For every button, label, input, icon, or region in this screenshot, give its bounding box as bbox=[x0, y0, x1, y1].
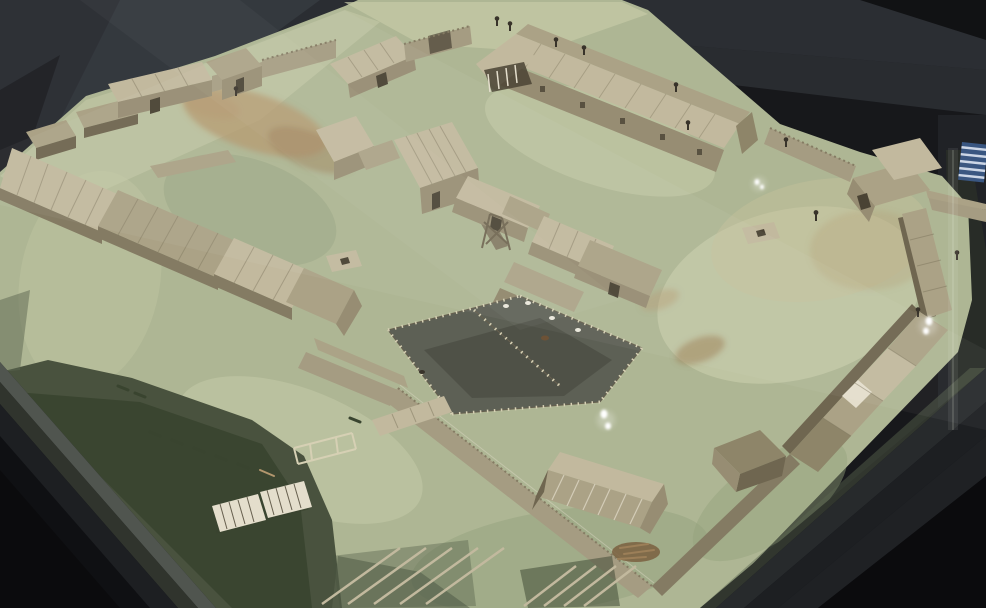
blue-screen-reflection bbox=[958, 142, 986, 183]
photo-frame bbox=[0, 0, 986, 608]
museum-model-photo bbox=[0, 0, 986, 608]
woodpile bbox=[612, 542, 660, 562]
